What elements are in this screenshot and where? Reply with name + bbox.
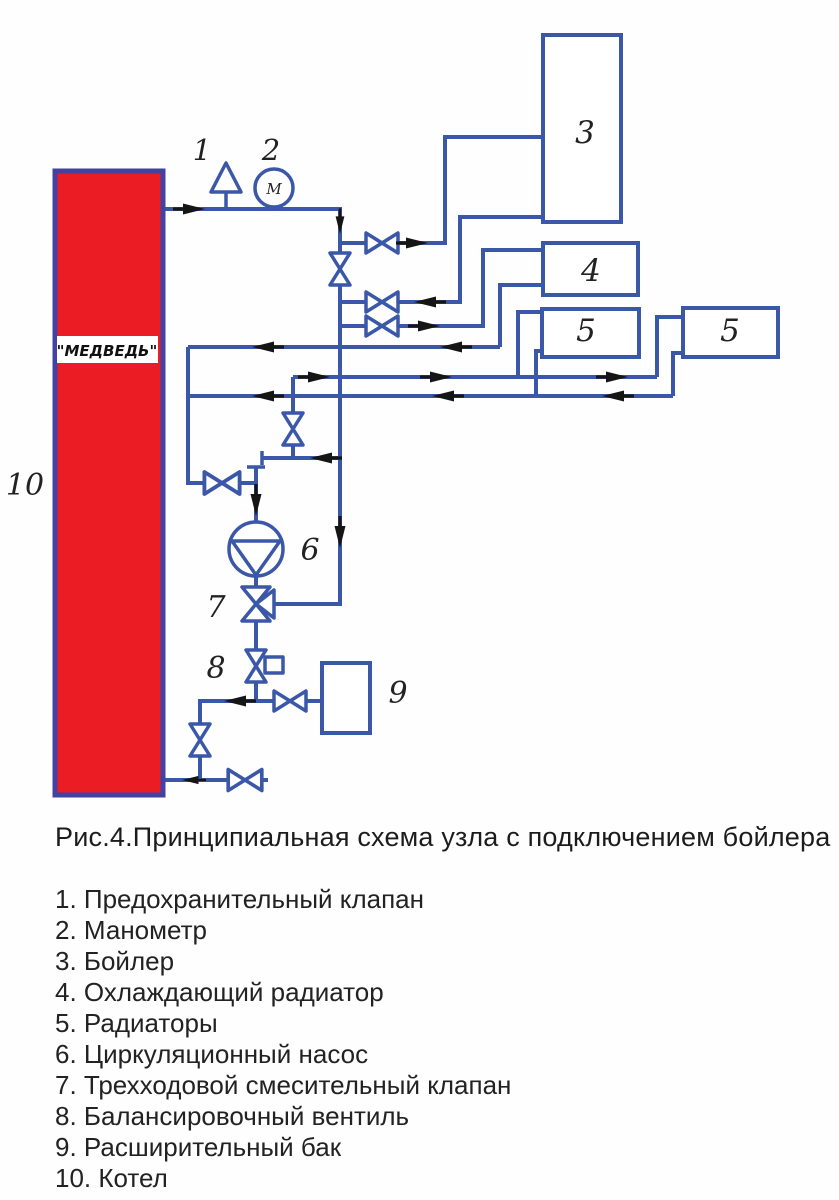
- figure-page: "МЕДВЕДЬ" М: [0, 0, 839, 1200]
- flow-arrow: [252, 342, 284, 353]
- boiler-tank-10: [55, 171, 163, 795]
- flow-arrow: [310, 453, 342, 464]
- label-8-balancing-valve: 8: [206, 651, 225, 686]
- valve-mixing-drop: [283, 413, 303, 445]
- valve-expansion-tank: [274, 691, 306, 711]
- expansion-tank-box-9: [322, 663, 370, 733]
- valve-boiler3-return: [366, 292, 398, 312]
- balancing-valve-symbol: [246, 650, 283, 682]
- label-3-boiler: 3: [575, 115, 595, 151]
- pipe-to-boiler-3: [340, 137, 543, 243]
- flow-arrow: [251, 484, 262, 516]
- flow-arrow: [432, 391, 464, 402]
- label-6-pump: 6: [300, 533, 319, 568]
- label-7-three-way-valve: 7: [206, 590, 226, 625]
- flow-arrow: [414, 297, 446, 308]
- label-5-radiator-a: 5: [576, 313, 596, 349]
- flow-arrow: [335, 516, 346, 548]
- flow-arrow: [298, 372, 330, 383]
- three-way-valve-symbol: [242, 587, 274, 621]
- pipe-from-radiator-4: [500, 285, 543, 347]
- manometer-symbol: М: [255, 169, 293, 209]
- label-1-safety-valve: 1: [193, 133, 211, 167]
- flow-arrow: [408, 321, 440, 332]
- valve-boiler3-supply: [366, 233, 398, 253]
- legend-item: 4. Охлаждающий радиатор: [55, 977, 511, 1008]
- flow-arrow: [440, 342, 472, 353]
- manometer-letter: М: [265, 180, 282, 198]
- piping-diagram: "МЕДВЕДЬ" М: [0, 0, 839, 812]
- legend-item: 1. Предохранительный клапан: [55, 884, 511, 915]
- legend-item: 2. Манометр: [55, 915, 511, 946]
- flow-arrow: [224, 696, 256, 707]
- pipe-from-boiler-3: [340, 217, 543, 302]
- flow-arrow: [182, 776, 206, 784]
- valve-return-to-pump: [204, 472, 239, 494]
- boiler-brand-label: "МЕДВЕДЬ": [57, 342, 158, 360]
- legend-item: 6. Циркуляционный насос: [55, 1039, 511, 1070]
- legend-list: 1. Предохранительный клапан 2. Манометр …: [55, 884, 511, 1194]
- pipe-radiator5a-supply: [518, 312, 542, 377]
- legend-item: 8. Балансировочный вентиль: [55, 1101, 511, 1132]
- pipe-return-drop: [188, 347, 256, 483]
- valve-radiator4-supply: [366, 316, 398, 336]
- legend-item: 7. Трехходовой смесительный клапан: [55, 1070, 511, 1101]
- flow-arrow: [252, 391, 284, 402]
- pipe-network: [163, 137, 683, 780]
- pump-symbol: [229, 522, 283, 576]
- legend-item: 5. Радиаторы: [55, 1008, 511, 1039]
- flow-arrow: [336, 208, 345, 234]
- flow-arrow: [596, 372, 628, 383]
- label-4-cooling-radiator: 4: [580, 253, 601, 289]
- legend-item: 10. Котел: [55, 1163, 511, 1194]
- flow-arrow: [420, 372, 452, 383]
- valve-main-riser: [330, 253, 350, 285]
- label-2-manometer: 2: [261, 133, 280, 167]
- label-9-expansion-tank: 9: [388, 676, 407, 711]
- valve-drain-fill: [228, 770, 262, 791]
- valve-bottom-riser: [190, 724, 210, 756]
- pipe-boiler-return-bottom: [163, 701, 256, 780]
- safety-valve-symbol: [211, 163, 241, 209]
- legend-item: 9. Расширительный бак: [55, 1132, 511, 1163]
- legend-item: 3. Бойлер: [55, 946, 511, 977]
- label-10-heating-boiler: 10: [6, 468, 44, 503]
- flow-arrow: [396, 238, 428, 249]
- pipe-radiator5b-return: [673, 353, 683, 396]
- figure-caption: Рис.4.Принципиальная схема узла с подклю…: [55, 822, 835, 853]
- label-5-radiator-b: 5: [720, 313, 740, 349]
- flow-arrow: [173, 204, 205, 215]
- pipe-to-radiator-4: [340, 250, 543, 326]
- pipe-radiator5b-supply: [657, 317, 683, 377]
- flow-arrow: [602, 391, 634, 402]
